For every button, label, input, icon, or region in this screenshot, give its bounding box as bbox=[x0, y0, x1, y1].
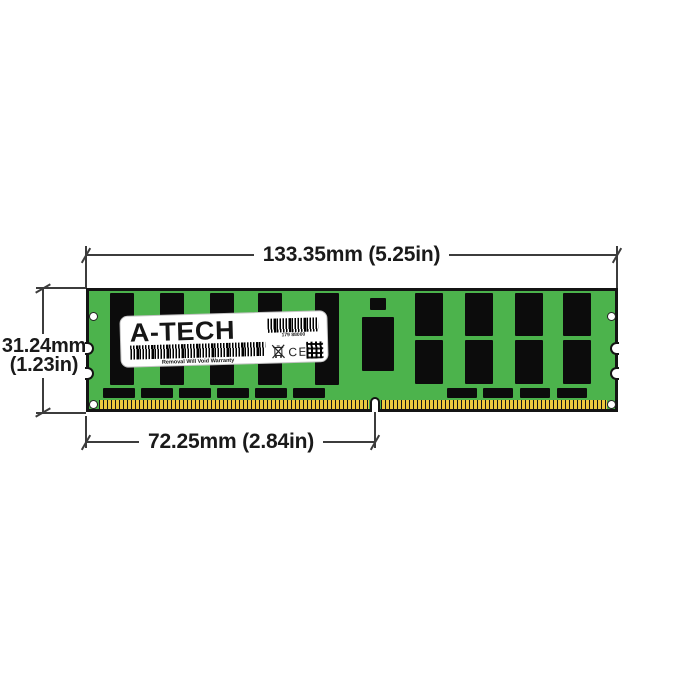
dram-chip bbox=[515, 340, 543, 384]
brand-logo: A-TECH bbox=[129, 317, 235, 346]
dram-chip bbox=[563, 293, 591, 336]
width-dimension-label: 133.35mm (5.25in) bbox=[86, 243, 617, 266]
small-chip bbox=[557, 388, 587, 398]
pin-dimension-text: 72.25mm (2.84in) bbox=[139, 430, 323, 453]
gold-pins-right bbox=[381, 400, 607, 409]
small-chip bbox=[483, 388, 513, 398]
small-chip bbox=[255, 388, 287, 398]
edge-notch bbox=[85, 342, 94, 355]
edge-notch bbox=[85, 367, 94, 380]
dram-chip bbox=[465, 340, 493, 384]
small-chip bbox=[179, 388, 211, 398]
small-chip bbox=[141, 388, 173, 398]
edge-notch bbox=[610, 342, 619, 355]
small-chip bbox=[520, 388, 550, 398]
edge-notch bbox=[610, 367, 619, 380]
pin-dimension-label: 72.25mm (2.84in) bbox=[86, 430, 376, 453]
weee-bin-icon bbox=[271, 343, 286, 364]
small-chip bbox=[103, 388, 135, 398]
gold-pins-left bbox=[99, 400, 369, 409]
small-chip bbox=[217, 388, 249, 398]
mounting-hole bbox=[89, 312, 98, 321]
dram-chip bbox=[515, 293, 543, 336]
height-dimension-text-in: (1.23in) bbox=[0, 356, 88, 375]
height-dimension-label: 31.24mm (1.23in) bbox=[0, 334, 88, 378]
product-label: A-TECH 179 88000 Removal Will Void Warra… bbox=[119, 310, 328, 368]
dram-chip bbox=[563, 340, 591, 384]
mounting-hole bbox=[89, 400, 98, 409]
product-dimension-diagram: 133.35mm (5.25in) 31.24mm (1.23in) 72.25… bbox=[0, 0, 700, 700]
mounting-hole bbox=[607, 312, 616, 321]
dram-chip bbox=[415, 340, 443, 384]
key-notch bbox=[370, 397, 380, 412]
mounting-hole bbox=[607, 400, 616, 409]
small-chip bbox=[293, 388, 325, 398]
small-chip bbox=[447, 388, 477, 398]
spd-chip bbox=[370, 298, 386, 310]
dram-chip bbox=[465, 293, 493, 336]
barcode-small-icon bbox=[267, 317, 318, 332]
width-dimension-text: 133.35mm (5.25in) bbox=[254, 243, 450, 266]
dram-chip bbox=[415, 293, 443, 336]
sku-number: 179 88000 bbox=[268, 331, 319, 338]
ram-module: A-TECH 179 88000 Removal Will Void Warra… bbox=[86, 288, 618, 412]
qr-code-icon bbox=[305, 340, 325, 360]
register-chip bbox=[362, 317, 394, 371]
